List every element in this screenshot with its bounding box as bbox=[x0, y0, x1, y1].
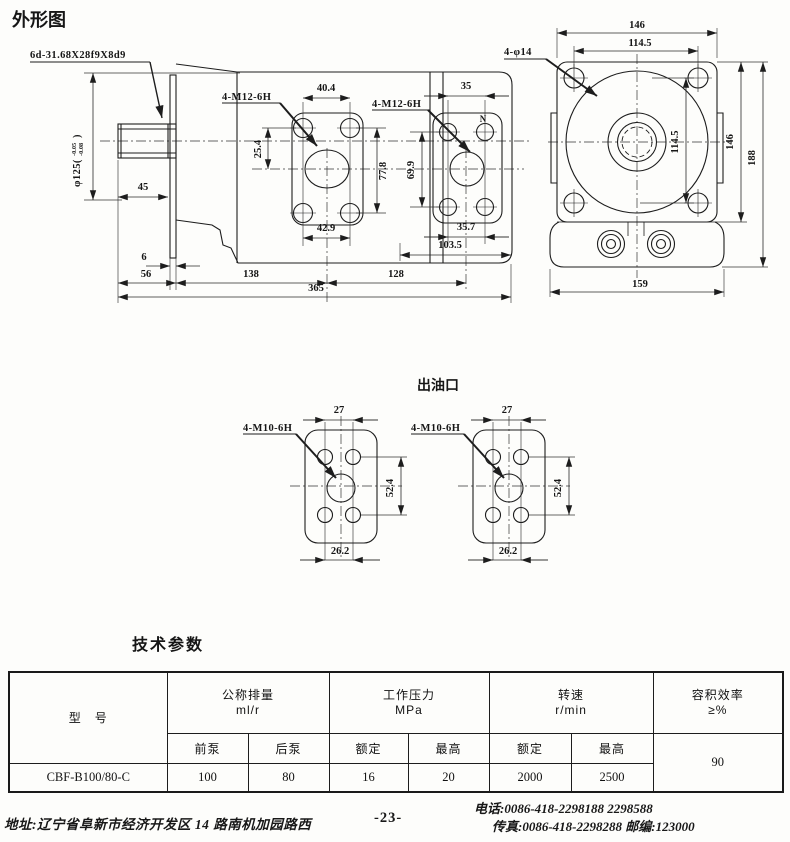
header-model: 型 号 bbox=[9, 672, 167, 763]
dim-end-hole-span-h: 114.5 bbox=[628, 38, 651, 49]
dim-rear-bottom: 35.7 bbox=[457, 222, 475, 233]
dim-center-offset: 25.4 bbox=[253, 139, 264, 158]
outlet-title: 出油口 bbox=[417, 377, 459, 393]
dim-total-len: 365 bbox=[308, 283, 324, 294]
outline-title: 外形图 bbox=[12, 9, 66, 30]
cell-rear-displacement: 80 bbox=[248, 763, 329, 792]
dim-center-center: 128 bbox=[388, 269, 404, 280]
header-speed: 转速 r/min bbox=[489, 672, 653, 733]
dim-shaft-ext: 45 bbox=[138, 182, 149, 193]
shaft-paren-close: ) bbox=[72, 134, 83, 138]
cell-efficiency: 90 bbox=[653, 733, 783, 792]
page-number: -23- bbox=[374, 810, 402, 827]
header-efficiency-name: 容积效率 bbox=[654, 688, 783, 703]
outlet1-dim-top: 27 bbox=[334, 405, 345, 416]
header-pressure-unit: MPa bbox=[330, 703, 489, 718]
outlet1-dim-side: 52.4 bbox=[385, 478, 396, 497]
outlet1-thread-label: 4-M10-6H bbox=[243, 423, 292, 434]
header-pressure-name: 工作压力 bbox=[330, 688, 489, 703]
dim-front-vspan: 77.8 bbox=[378, 162, 389, 180]
dim-rear-vspan: 69.9 bbox=[406, 161, 417, 179]
dim-rear-top: 35 bbox=[461, 81, 472, 92]
end-view bbox=[504, 28, 768, 297]
dim-plate-thk: 6 bbox=[141, 252, 146, 263]
params-title: 技术参数 bbox=[132, 635, 204, 654]
front-thread-label: 4-M12-6H bbox=[222, 92, 271, 103]
technical-drawing: 外形图 出油口 技术参数 bbox=[0, 0, 790, 665]
header-displacement-name: 公称排量 bbox=[168, 688, 329, 703]
catalog-page: 外形图 出油口 技术参数 bbox=[0, 0, 790, 842]
subheader-rear-pump: 后泵 bbox=[248, 733, 329, 763]
header-displacement-unit: ml/r bbox=[168, 703, 329, 718]
cell-rated-pressure: 16 bbox=[329, 763, 408, 792]
dim-foot-width: 159 bbox=[632, 279, 648, 290]
company-address: 地址:辽宁省阜新市经济开发区 14 路南机加园路西 bbox=[4, 813, 311, 833]
outlet2-dim-top: 27 bbox=[502, 405, 513, 416]
subheader-max-pressure: 最高 bbox=[408, 733, 489, 763]
phone-line: 电话:0086-418-2298188 2298588 bbox=[474, 800, 695, 818]
outlet2-dim-side: 52.4 bbox=[553, 478, 564, 497]
outlet2-dim-bottom: 26.2 bbox=[499, 546, 517, 557]
cell-max-speed: 2500 bbox=[571, 763, 653, 792]
dim-end-hole-span-v: 114.5 bbox=[670, 130, 681, 153]
rear-thread-label: 4-M12-6H bbox=[372, 99, 421, 110]
shaft-diameter-label: φ125( -0.05 -0.08 ) bbox=[71, 134, 85, 187]
outlet2-thread-label: 4-M10-6H bbox=[411, 423, 460, 434]
spline-spec-label: 6d-31.68X28f9X8d9 bbox=[30, 50, 126, 61]
main-view bbox=[30, 62, 532, 303]
mount-plate bbox=[170, 75, 176, 258]
subheader-rated-speed: 额定 bbox=[489, 733, 571, 763]
header-pressure: 工作压力 MPa bbox=[329, 672, 489, 733]
cell-front-displacement: 100 bbox=[167, 763, 248, 792]
cell-rated-speed: 2000 bbox=[489, 763, 571, 792]
corner-holes bbox=[560, 64, 712, 217]
shaft-diameter-value: φ125( bbox=[72, 159, 83, 187]
dim-rear-face: 103.5 bbox=[438, 240, 462, 251]
outlet1-dim-bottom: 26.2 bbox=[331, 546, 349, 557]
outlet-flange-2 bbox=[411, 416, 575, 560]
shaft-tol-upper: -0.05 bbox=[71, 143, 78, 156]
spec-table: 型 号 公称排量 ml/r 工作压力 MPa 转速 r/min 容积效率 ≥% … bbox=[8, 671, 784, 793]
dim-front-top: 40.4 bbox=[317, 83, 336, 94]
header-speed-name: 转速 bbox=[490, 688, 653, 703]
dim-end-height: 146 bbox=[725, 134, 736, 150]
shaft-tol-lower: -0.08 bbox=[78, 143, 85, 156]
cell-model: CBF-B100/80-C bbox=[9, 763, 167, 792]
port-n-mark: N bbox=[480, 114, 487, 124]
corner-hole-label: 4-φ14 bbox=[504, 47, 532, 58]
dim-end-total-height: 188 bbox=[747, 150, 758, 166]
subheader-front-pump: 前泵 bbox=[167, 733, 248, 763]
header-speed-unit: r/min bbox=[490, 703, 653, 718]
dim-front-center: 138 bbox=[243, 269, 259, 280]
outlet-flange-1 bbox=[243, 416, 407, 560]
header-efficiency-unit: ≥% bbox=[654, 703, 783, 718]
subheader-rated-pressure: 额定 bbox=[329, 733, 408, 763]
page-footer: 地址:辽宁省阜新市经济开发区 14 路南机加园路西 -23- 电话:0086-4… bbox=[0, 800, 790, 842]
header-efficiency: 容积效率 ≥% bbox=[653, 672, 783, 733]
dim-shaft-len: 56 bbox=[141, 269, 152, 280]
contact-info: 电话:0086-418-2298188 2298588 传真:0086-418-… bbox=[462, 800, 695, 836]
subheader-max-speed: 最高 bbox=[571, 733, 653, 763]
dim-front-bottom: 42.9 bbox=[317, 223, 335, 234]
cell-max-pressure: 20 bbox=[408, 763, 489, 792]
foot-bolt-bosses bbox=[598, 231, 675, 258]
header-displacement: 公称排量 ml/r bbox=[167, 672, 329, 733]
dim-end-width: 146 bbox=[629, 20, 645, 31]
fax-line: 传真:0086-418-2298288 邮编:123000 bbox=[492, 818, 695, 836]
